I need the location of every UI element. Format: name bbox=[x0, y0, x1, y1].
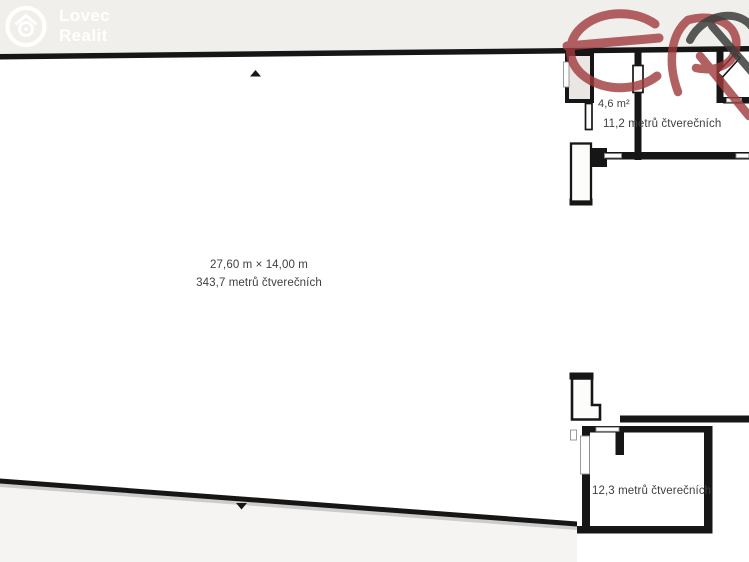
window-rooms-bottom-1 bbox=[605, 154, 622, 158]
window-stub-below-door bbox=[571, 430, 577, 440]
window-room12-left bbox=[581, 436, 590, 474]
window-room12-top bbox=[596, 427, 619, 431]
main-hall-dimensions: 27,60 m × 14,00 m bbox=[134, 257, 384, 275]
shaft-interior bbox=[569, 56, 590, 99]
door-leaf-hall-upper bbox=[571, 144, 591, 202]
wall-room12-stub bbox=[616, 432, 625, 455]
window-corner-room bbox=[727, 98, 742, 102]
window-shaft-left bbox=[564, 62, 570, 87]
main-hall-label: 27,60 m × 14,00 m 343,7 metrů čtverečníc… bbox=[134, 257, 384, 292]
small-room-label: 4,6 m² bbox=[598, 96, 630, 114]
wall-corridor-bottom bbox=[620, 416, 749, 423]
window-rooms-bottom-2 bbox=[736, 154, 749, 158]
door-leaf-divider bbox=[633, 66, 643, 93]
bottom-right-room-label: 12,3 metrů čtverečních bbox=[592, 483, 711, 501]
wall-room12-bottom bbox=[577, 526, 712, 534]
door-leaf-shaft bbox=[586, 104, 593, 130]
top-right-room-label: 11,2 metrů čtverečních bbox=[603, 116, 721, 134]
main-hall-area: 343,7 metrů čtverečních bbox=[134, 275, 384, 293]
wall-room12-right bbox=[704, 426, 713, 534]
floorplan-canvas: 27,60 m × 14,00 m 343,7 metrů čtverečníc… bbox=[0, 0, 749, 562]
